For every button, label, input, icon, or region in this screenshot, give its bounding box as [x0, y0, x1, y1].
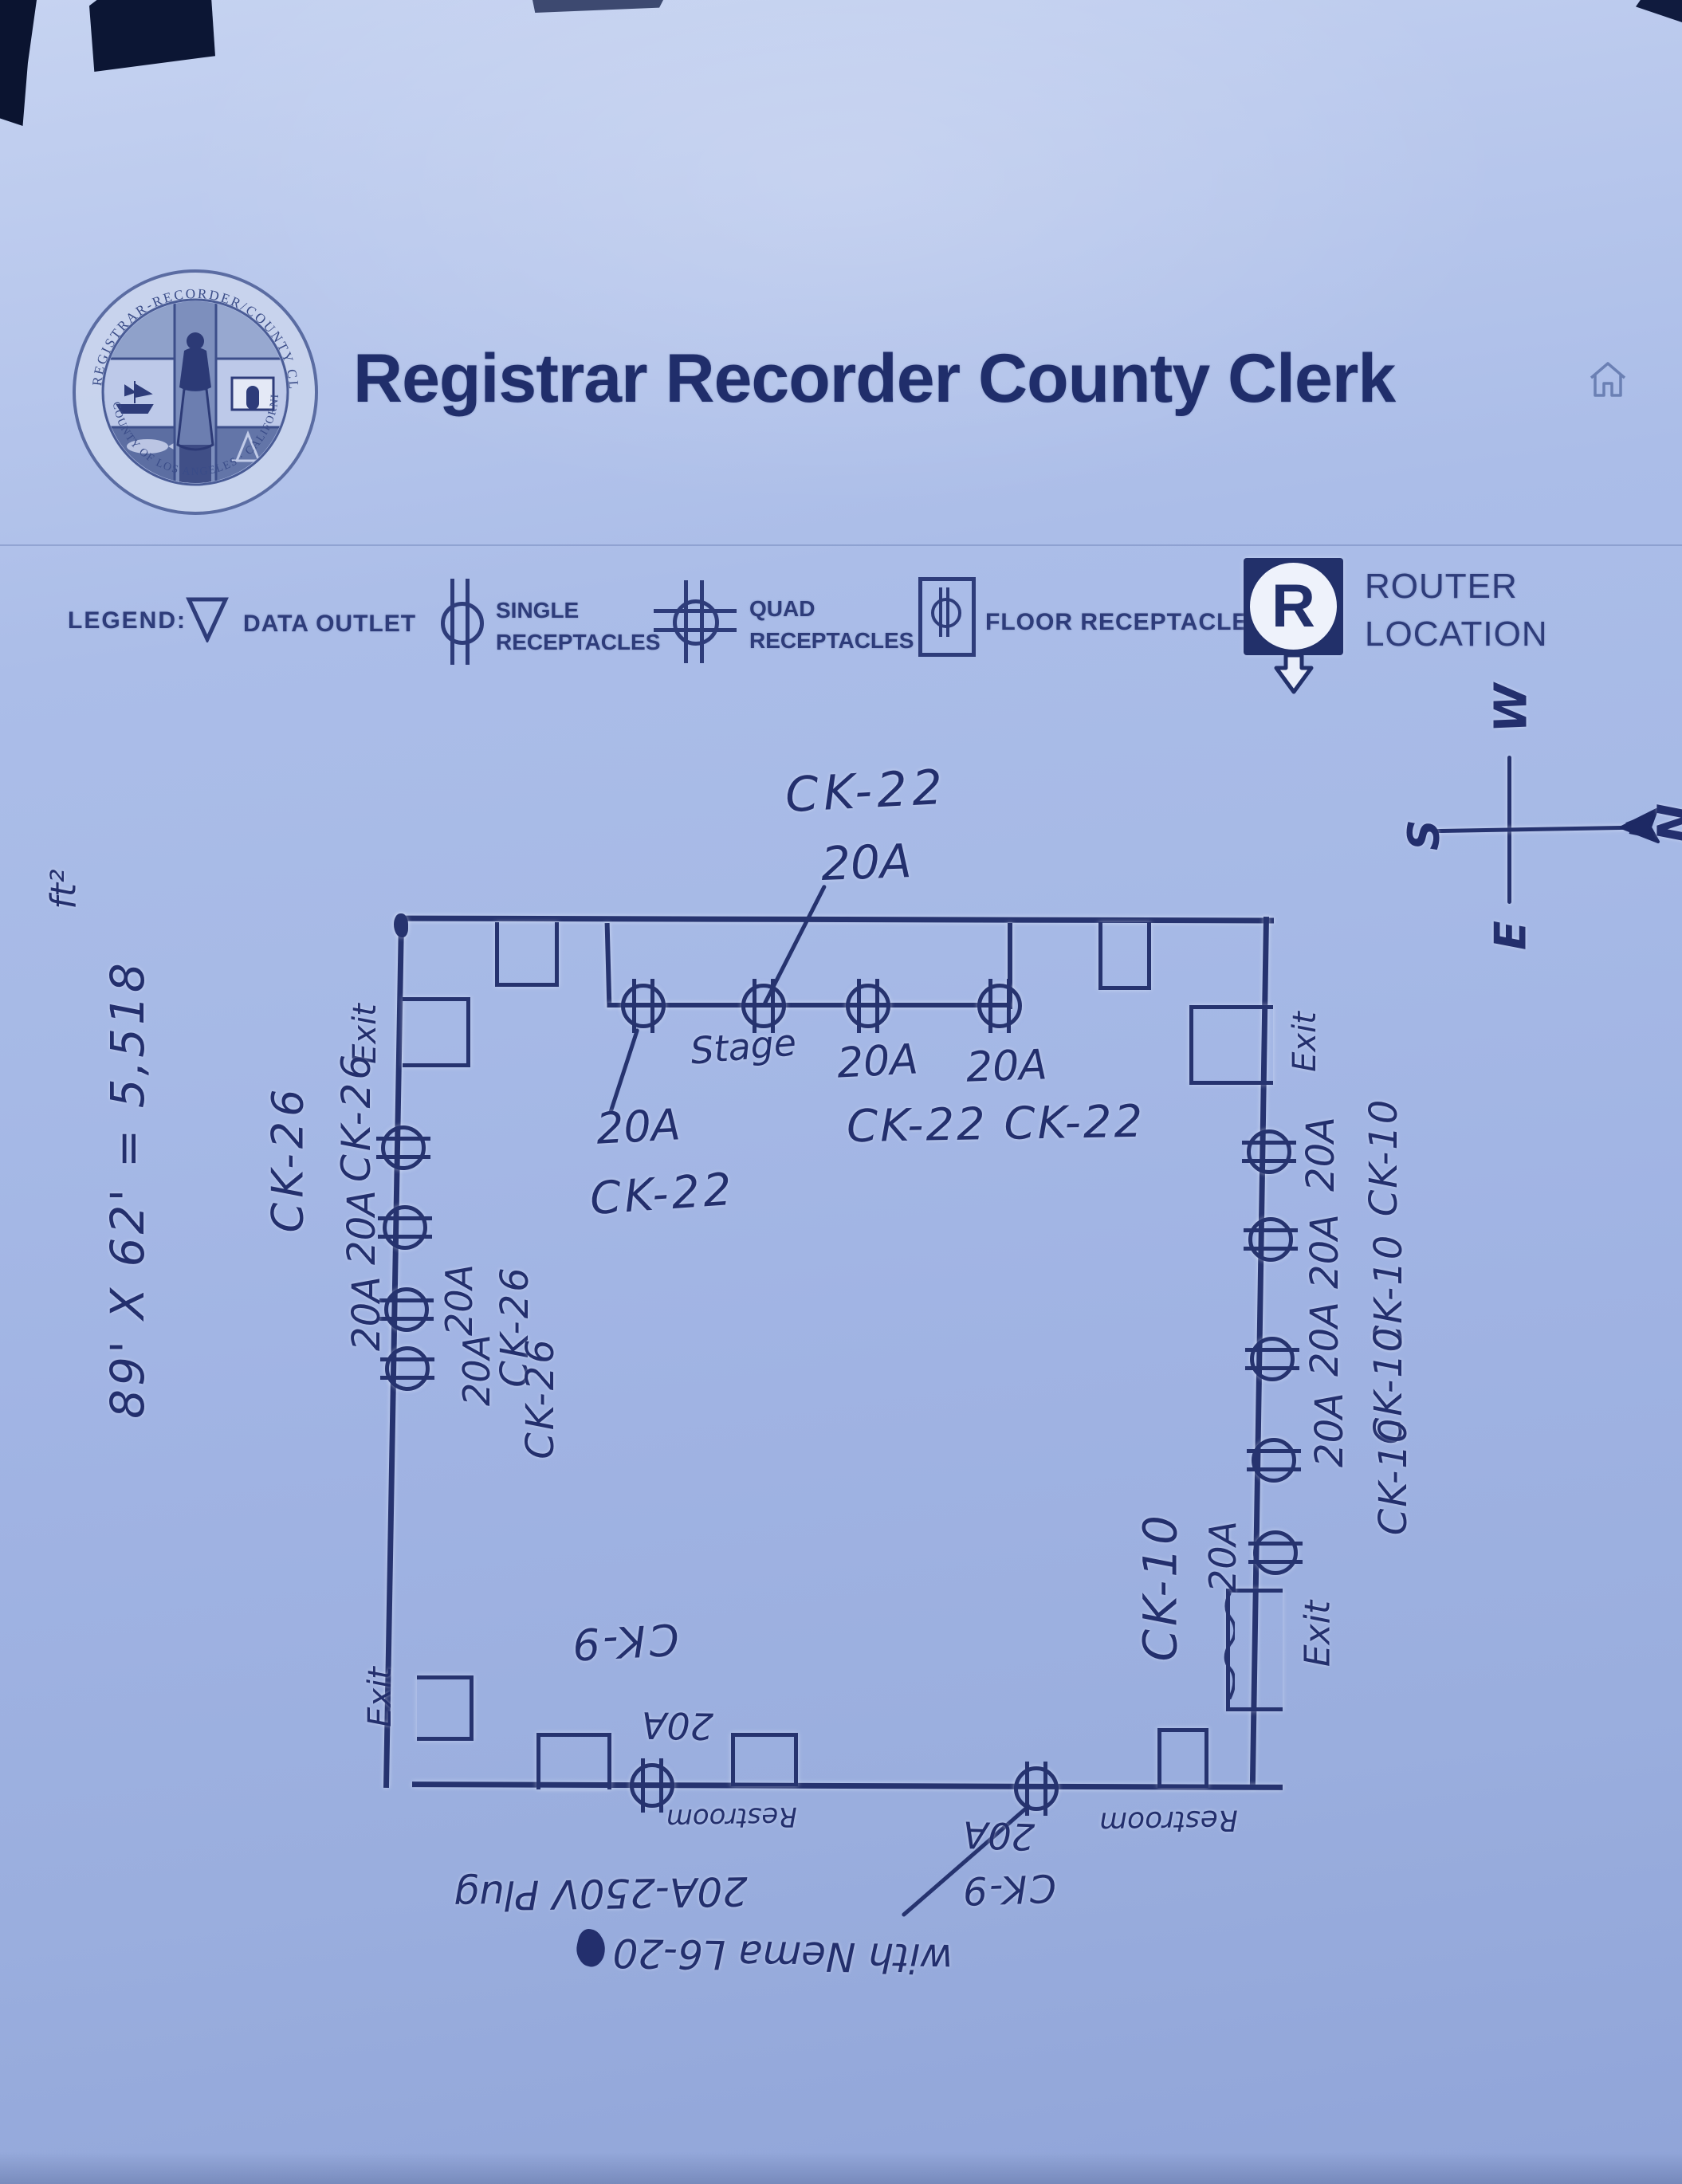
- circuit-label-left-b: CK-26: [333, 1045, 379, 1188]
- room-dimensions-unit: ft²: [44, 854, 84, 925]
- amp-label-bottom-1: 20A: [634, 1703, 722, 1748]
- door-top-left: [403, 997, 470, 1067]
- quad-receptacle-icon: [1247, 1129, 1291, 1174]
- exit-label-bottom-right: Exit: [1298, 1578, 1338, 1690]
- legend-title: LEGEND:: [68, 607, 187, 634]
- floor-receptacle-icon: [918, 577, 976, 657]
- paper-bottom-shadow: [0, 2152, 1682, 2184]
- single-receptacle-label: SINGLE RECEPTACLES: [496, 595, 660, 658]
- paper-edge-shadow: [1636, 0, 1682, 22]
- door-bottom-right-ramp: [1226, 1589, 1283, 1711]
- restroom-label-left: Restroom: [678, 1801, 798, 1835]
- nema-note-text: with Nema L6-20: [612, 1930, 953, 1982]
- amp-label-left-b: 20A: [344, 1274, 389, 1353]
- corner-ink-blob: [394, 913, 408, 937]
- amp-label-bottom-2: 20A: [954, 1813, 1043, 1859]
- quad-receptacle-icon: [385, 1346, 430, 1391]
- header-divider: [0, 544, 1682, 546]
- exit-label-bottom-left: Exit: [362, 1649, 399, 1745]
- quad-receptacle-icon: [384, 1287, 429, 1332]
- data-outlet-label: DATA OUTLET: [243, 611, 416, 638]
- router-location-icon: R: [1244, 558, 1343, 655]
- paper-edge-shadow: [0, 0, 37, 126]
- circuit-label-bottom-2: CK-9: [944, 1864, 1073, 1914]
- amp-label-right-4: 20A: [1307, 1390, 1352, 1470]
- plug-spec-note: 20A-250V Plug: [485, 1868, 749, 1919]
- quad-receptacle-icon: [846, 984, 890, 1028]
- router-arrow-icon: [1274, 654, 1314, 695]
- amp-label-stage4: 20A: [965, 1041, 1048, 1092]
- data-outlet-icon: [186, 596, 229, 642]
- single-receptacle-icon: [437, 579, 485, 665]
- stage-front-line: [607, 1003, 1011, 1008]
- compass-south-label: S: [1399, 803, 1449, 867]
- amp-label-left-inner-b: 20A: [455, 1330, 498, 1410]
- quad-receptacle-icon: [630, 1763, 674, 1808]
- stage-label: Stage: [689, 1020, 798, 1072]
- quad-receptacle-icon: [383, 1205, 427, 1250]
- quad-receptacle-icon: [1250, 1337, 1295, 1381]
- amp-label-right-2: 20A: [1303, 1212, 1347, 1291]
- amp-label-stage1: 20A: [595, 1099, 682, 1153]
- paper-edge-shadow: [89, 0, 215, 72]
- paper-edge-shadow: [533, 0, 663, 13]
- circuit-label-right-1: CK-10: [1362, 1094, 1406, 1221]
- single-receptacle-label-line2: RECEPTACLES: [496, 627, 660, 658]
- router-location-label: ROUTER LOCATION: [1365, 563, 1548, 658]
- amp-label-right-3: 20A: [1303, 1299, 1347, 1379]
- amp-label-stage3: 20A: [835, 1035, 919, 1087]
- compass-horizontal-line: [1433, 826, 1626, 833]
- amp-label-right-5: 20A: [1201, 1517, 1244, 1597]
- quad-receptacle-icon: [1014, 1766, 1059, 1811]
- circuit-label-stage1: CK-22: [588, 1164, 737, 1226]
- circuit-label-right-4: CK-10: [1371, 1412, 1416, 1540]
- quad-receptacle-icon: [977, 984, 1022, 1028]
- room-dimensions-note: 89' X 62' = 5,518: [100, 926, 155, 1452]
- quad-receptacle-legend-icon: [652, 579, 740, 666]
- circuit-label-right-5: CK-10: [1134, 1514, 1188, 1662]
- circuit-label-left-inner-b: CK-26: [518, 1326, 563, 1470]
- circuit-label-ck22-callout: CK-22: [784, 760, 949, 824]
- callout-leader-to-stage-outlet: [763, 884, 827, 1005]
- scratched-out-mark: [574, 1929, 608, 1970]
- door-bottom-wall-2: [731, 1733, 798, 1786]
- door-bottom-wall-1: [536, 1733, 611, 1789]
- circuit-label-stage-right: CK-22 CK-22: [846, 1096, 1145, 1153]
- nema-spec-note: with Nema L6-20: [550, 1928, 981, 1982]
- door-bottom-left: [417, 1675, 474, 1741]
- amp-label-callout: 20A: [820, 834, 913, 891]
- compass-east-label: E: [1486, 904, 1536, 968]
- quad-receptacle-label-line2: RECEPTACLES: [749, 625, 914, 657]
- compass-north-label: N: [1648, 792, 1682, 855]
- door-squiggle: [1222, 1593, 1235, 1699]
- floor-receptacle-label: FLOOR RECEPTACLES: [985, 609, 1265, 636]
- amp-label-left-a: 20A: [340, 1188, 384, 1267]
- quad-receptacle-icon: [1253, 1530, 1298, 1575]
- router-label-line2: LOCATION: [1365, 611, 1548, 658]
- home-icon: [1585, 357, 1631, 400]
- circuit-label-bottom-1: CK-9: [543, 1612, 705, 1671]
- router-label-line1: ROUTER: [1365, 563, 1548, 611]
- amp-label-left-inner-a: 20A: [438, 1260, 481, 1340]
- compass-west-label: W: [1486, 677, 1538, 740]
- door-bottom-wall-3: [1157, 1728, 1208, 1788]
- router-letter: R: [1271, 572, 1315, 640]
- exit-label-top-right: Exit: [1287, 994, 1323, 1090]
- stage-left-line: [605, 923, 612, 1008]
- quad-receptacle-label-line1: QUAD: [749, 593, 914, 625]
- page-title: Registrar Recorder County Clerk: [353, 341, 1395, 417]
- top-wall-notch-left: [495, 922, 559, 987]
- restroom-label-right: Restroom: [1097, 1803, 1241, 1838]
- county-seal-logo: REGISTRAR-RECORDER/COUNTY CLERK COUNTY O…: [68, 265, 323, 520]
- amp-label-right-1: 20A: [1299, 1114, 1343, 1194]
- quad-receptacle-icon: [381, 1125, 426, 1170]
- single-receptacle-label-line1: SINGLE: [496, 595, 660, 627]
- quad-receptacle-icon: [1248, 1217, 1293, 1262]
- scanned-floor-plan-page: REGISTRAR-RECORDER/COUNTY CLERK COUNTY O…: [0, 0, 1682, 2184]
- top-wall-notch-right: [1098, 922, 1151, 990]
- door-top-right: [1189, 1005, 1273, 1085]
- quad-receptacle-icon: [621, 984, 666, 1028]
- circuit-label-left-a: CK-26: [263, 1051, 313, 1267]
- quad-receptacle-label: QUAD RECEPTACLES: [749, 593, 914, 657]
- quad-receptacle-icon: [1252, 1438, 1296, 1483]
